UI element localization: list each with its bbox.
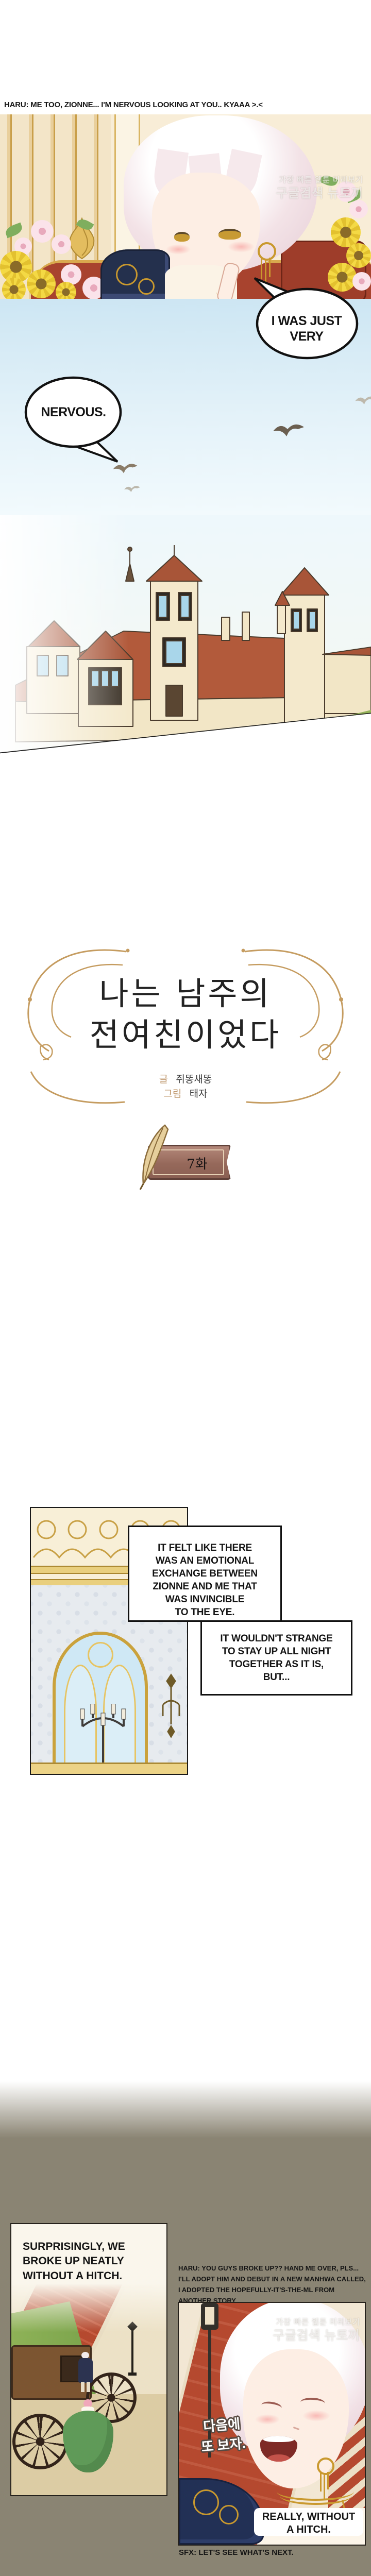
narration-box-2-text: IT WOULDN'T STRANGE TO STAY UP ALL NIGHT… xyxy=(202,1622,351,1684)
tongue xyxy=(267,2454,290,2462)
feather-quill-icon xyxy=(128,1122,175,1190)
pink-flower xyxy=(52,234,71,254)
man-leg xyxy=(87,2382,90,2392)
sunflower xyxy=(56,282,76,299)
lamppost-pole xyxy=(131,2329,133,2374)
window-rose-tracery xyxy=(88,1642,113,1668)
series-title-line2: 전여친이었다 xyxy=(0,1009,371,1055)
watermark-panel1: 가장 빠른 웹툰 미리보기 구글검색 뉴토끼 xyxy=(258,175,363,201)
bird-icon xyxy=(272,420,306,440)
watermark-line2: 구글검색 뉴토끼 xyxy=(272,2328,360,2344)
korean-speech-text: 다음에 또 보자. xyxy=(193,2413,252,2458)
credit-artist-name: 태자 xyxy=(190,1089,208,1099)
lantern-glass xyxy=(205,2307,214,2325)
lamppost-base xyxy=(128,2372,137,2376)
teeth xyxy=(263,2436,294,2442)
panel-smiling-man: 다음에 또 보자. 가장 빠른 웹툰 미리보기 구글검색 뉴토끼 REALLY,… xyxy=(178,2302,366,2546)
figure-woman-green-dress xyxy=(63,2399,114,2474)
panel-castle xyxy=(0,515,371,755)
credit-writer: 글 쥐똥새똥 xyxy=(0,1072,371,1086)
bird-icon xyxy=(124,483,141,495)
gold-baseboard xyxy=(31,1762,187,1775)
narration-box-1: IT FELT LIKE THERE WAS AN EMOTIONAL EXCH… xyxy=(128,1526,282,1622)
credit-writer-name: 쥐똥새똥 xyxy=(176,1074,212,1085)
watermark-line1: 가장 빠른 웹툰 미리보기 xyxy=(258,175,363,185)
blush-left xyxy=(255,2414,280,2425)
sfx-note: SFX: LET'S SEE WHAT'S NEXT. xyxy=(179,2548,364,2557)
epaulette-gold-braid xyxy=(193,2489,219,2515)
sunflower xyxy=(2,278,26,299)
narration-box-1-text: IT FELT LIKE THERE WAS AN EMOTIONAL EXCH… xyxy=(129,1527,280,1619)
webtoon-page: HARU: ME TOO, ZIONNE... I'M NERVOUS LOOK… xyxy=(0,0,371,2576)
top-author-note: HARU: ME TOO, ZIONNE... I'M NERVOUS LOOK… xyxy=(4,100,365,109)
right-eye xyxy=(218,229,241,240)
bottom-narration-2-text: REALLY, WITHOUT A HITCH. xyxy=(254,2508,363,2536)
speech-bubble-2-text: NERVOUS. xyxy=(28,404,119,420)
bottom-narration-1: SURPRISINGLY, WE BROKE UP NEATLY WITHOUT… xyxy=(23,2240,155,2283)
woman-gown xyxy=(63,2411,113,2472)
blush-left xyxy=(166,244,191,255)
castle-illustration xyxy=(0,515,371,755)
bottom-narration-2-box: REALLY, WITHOUT A HITCH. xyxy=(254,2508,363,2536)
pink-flower xyxy=(349,200,368,218)
sunflower xyxy=(27,269,56,298)
epaulette-gold-braid xyxy=(219,2505,239,2524)
pink-flower xyxy=(31,220,54,243)
man-coat xyxy=(78,2358,93,2383)
coat-gold-embroidery xyxy=(138,278,155,295)
credit-artist: 그림 태자 xyxy=(0,1086,371,1100)
carriage-wheel-rear xyxy=(12,2414,68,2469)
flower-cluster-left xyxy=(0,220,113,299)
narration-box-2: IT WOULDN'T STRANGE TO STAY UP ALL NIGHT… xyxy=(200,1620,352,1696)
watermark-line1: 가장 빠른 웹툰 미리보기 xyxy=(272,2317,360,2328)
panel-interior-character: 가장 빠른 웹툰 미리보기 구글검색 뉴토끼 xyxy=(0,114,371,299)
blush-right xyxy=(302,2410,330,2421)
wall-sconce-icon xyxy=(161,1673,181,1740)
sunflower xyxy=(346,243,371,268)
panel-carriage-farewell: SURPRISINGLY, WE BROKE UP NEATLY WITHOUT… xyxy=(10,2223,167,2496)
credit-writer-label: 글 xyxy=(159,1074,168,1085)
bird-icon xyxy=(112,460,139,477)
gold-choker-second xyxy=(280,2486,352,2505)
bird-icon xyxy=(355,393,371,408)
figure-man-navy-coat xyxy=(77,2352,94,2392)
left-eye xyxy=(174,232,190,242)
haru-margin-note: HARU: YOU GUYS BROKE UP?? HAND ME OVER, … xyxy=(178,2263,368,2306)
man-leg xyxy=(81,2382,85,2392)
coat-gold-embroidery xyxy=(116,264,138,285)
watermark-line2: 구글검색 뉴토끼 xyxy=(258,185,363,201)
leaf xyxy=(4,223,24,238)
watermark-panel-right: 가장 빠른 웹툰 미리보기 구글검색 뉴토끼 xyxy=(272,2317,360,2344)
blush-right xyxy=(228,241,255,252)
series-title-line1: 나는 남주의 xyxy=(0,968,371,1014)
speech-bubble-1-text: I WAS JUST VERY xyxy=(258,313,356,344)
credit-artist-label: 그림 xyxy=(163,1089,181,1099)
